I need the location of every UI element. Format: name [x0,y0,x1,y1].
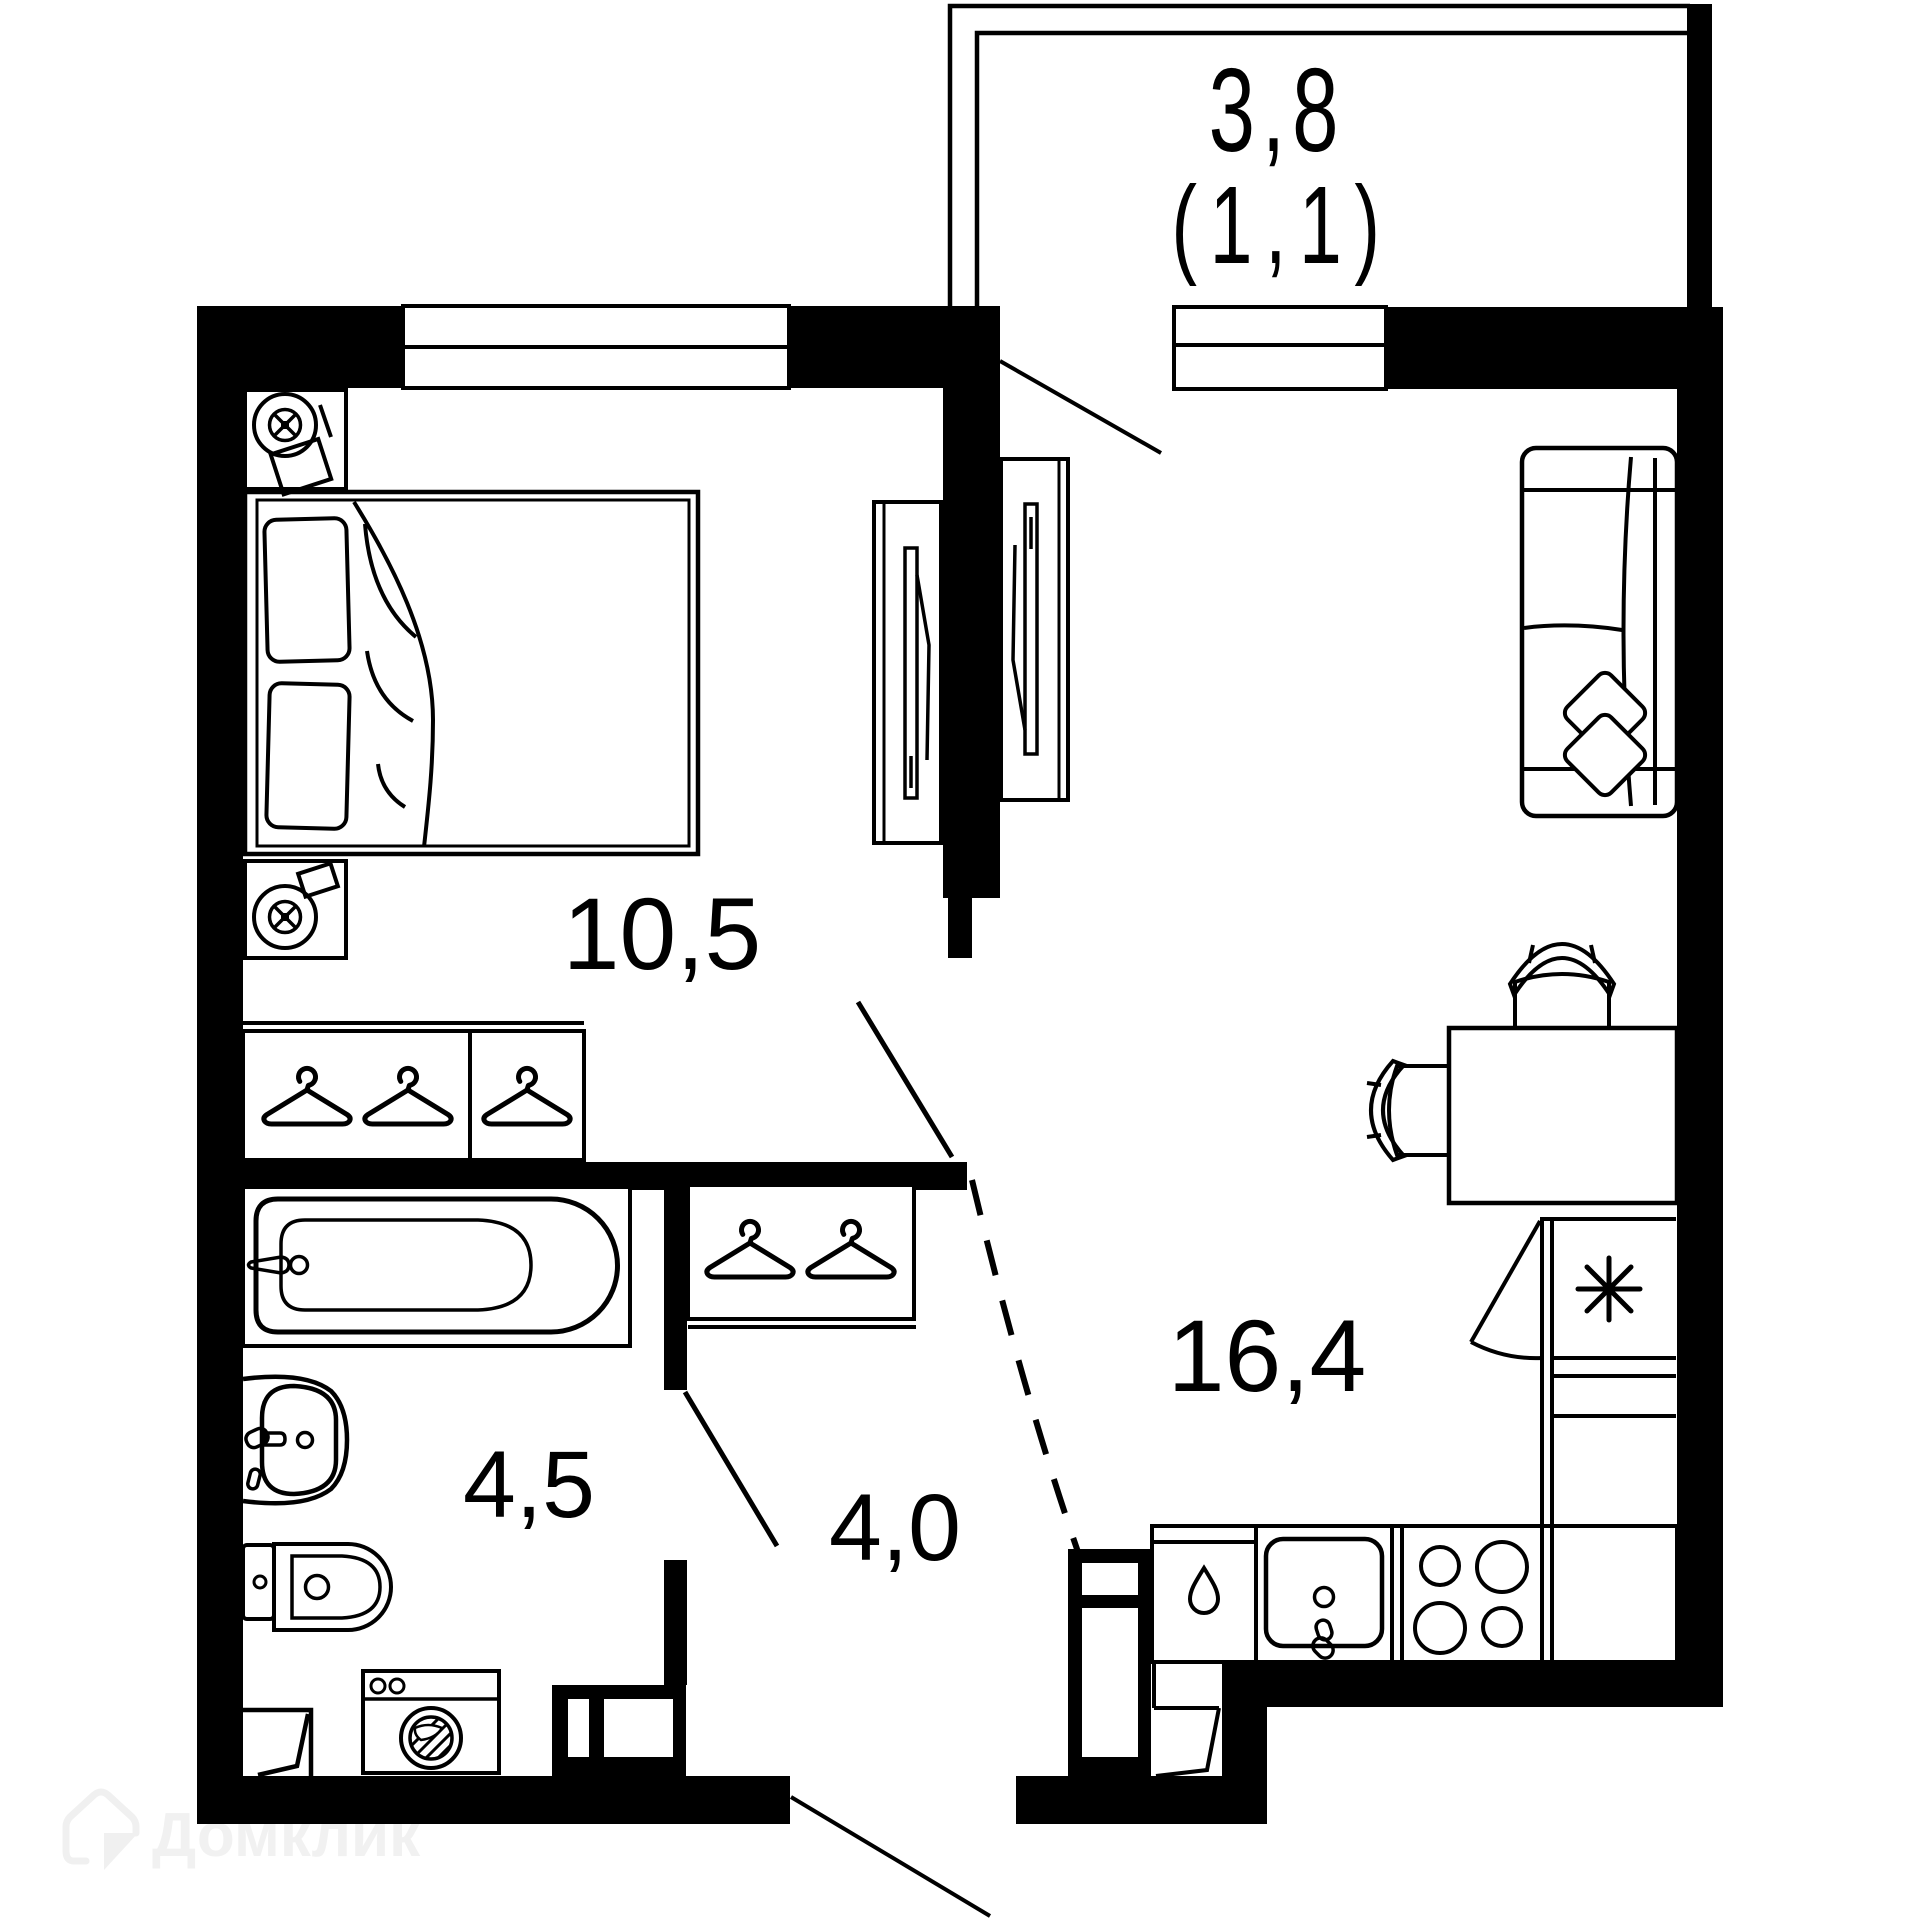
svg-text:16,4: 16,4 [1168,1299,1367,1413]
svg-text:4,0: 4,0 [829,1475,961,1581]
svg-text:4,5: 4,5 [463,1432,595,1538]
svg-text:(1,1): (1,1) [1171,165,1392,288]
svg-text:10,5: 10,5 [563,877,762,991]
svg-text:3,8: 3,8 [1209,43,1346,176]
